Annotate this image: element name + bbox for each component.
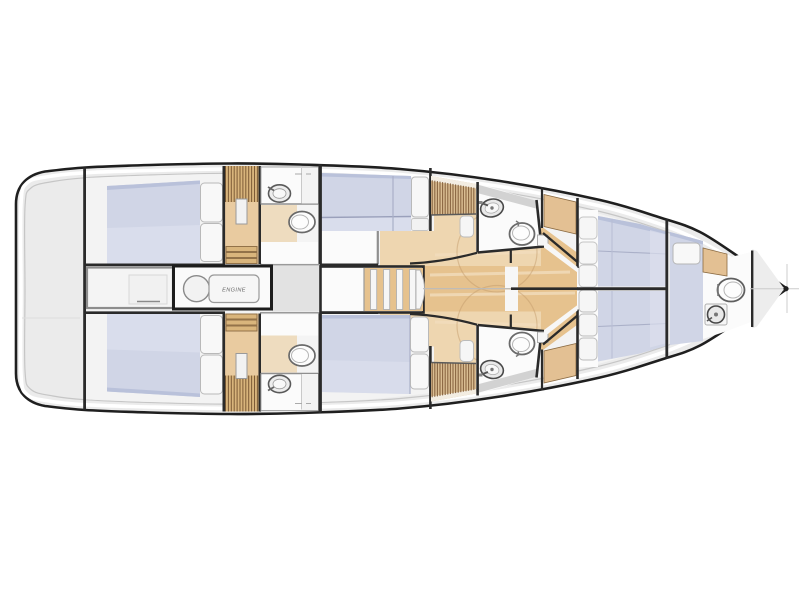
svg-text:ENGINE: ENGINE (222, 288, 246, 294)
